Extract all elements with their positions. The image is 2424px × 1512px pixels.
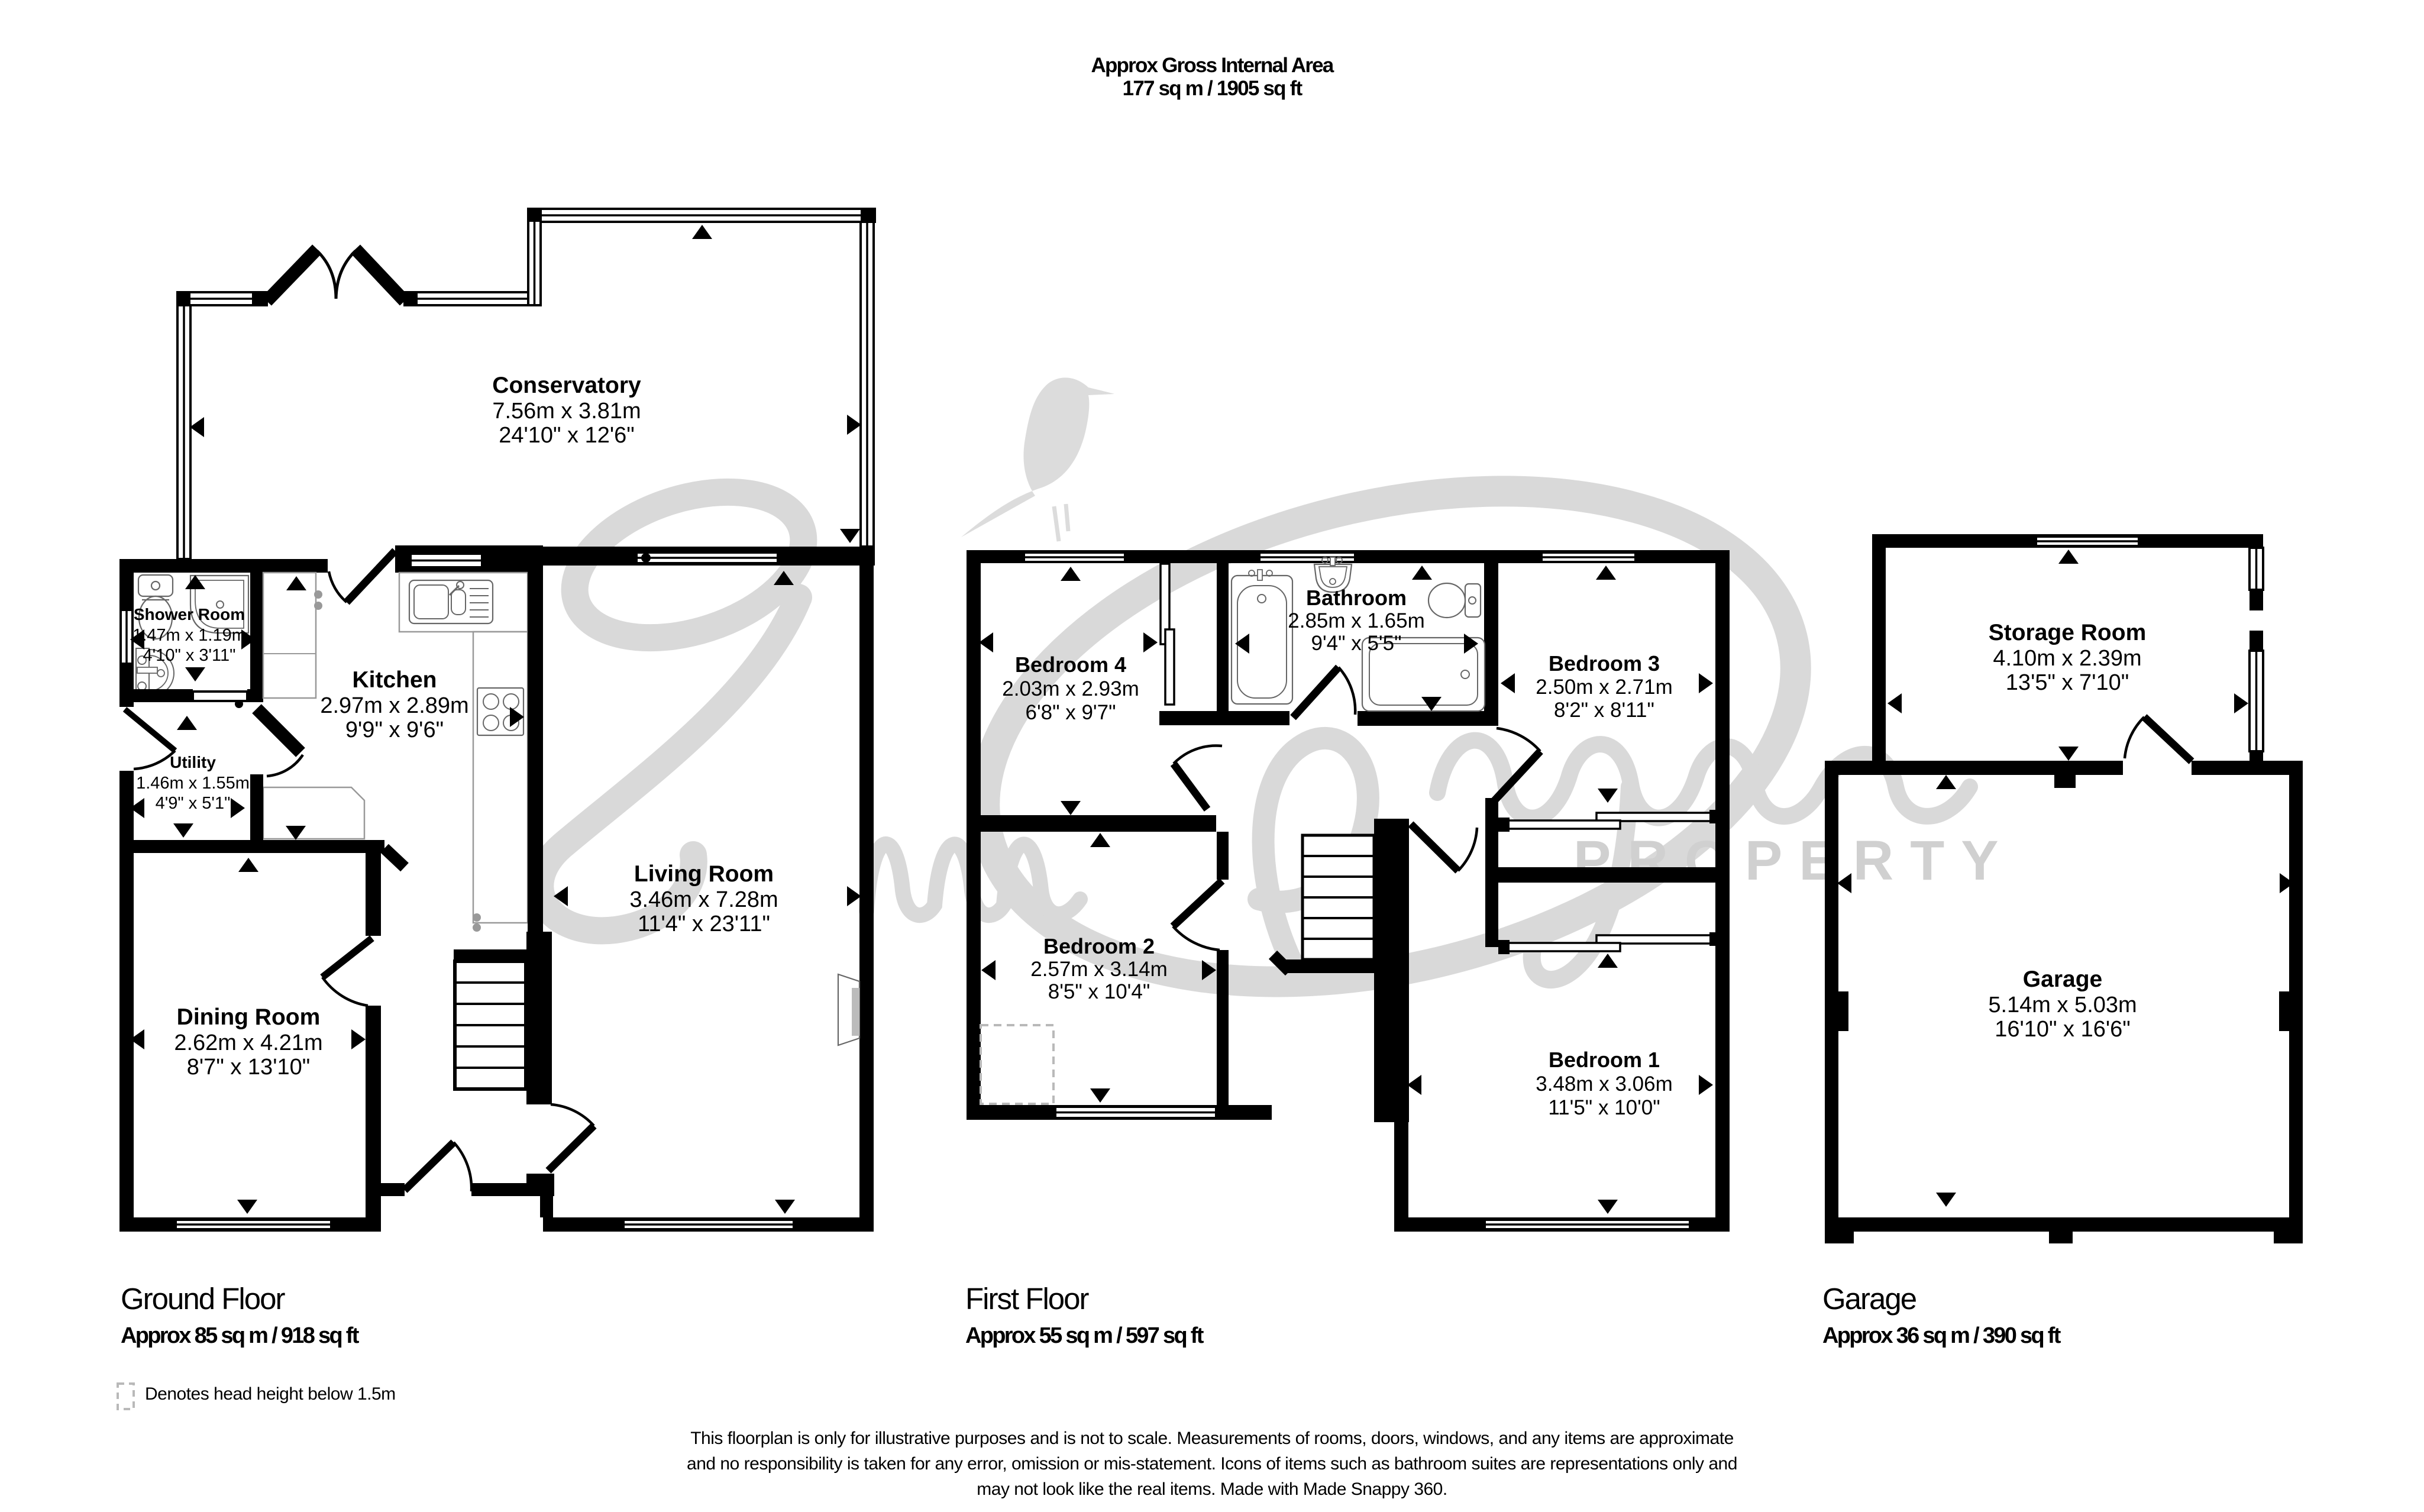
svg-text:Denotes head height below 1.5m: Denotes head height below 1.5m <box>145 1384 396 1404</box>
svg-text:Garage: Garage <box>1822 1282 1916 1316</box>
svg-text:13'5" x 7'10": 13'5" x 7'10" <box>2006 670 2129 695</box>
svg-text:Approx 36 sq m / 390 sq ft: Approx 36 sq m / 390 sq ft <box>1822 1323 2061 1348</box>
svg-text:Living Room: Living Room <box>634 861 774 887</box>
svg-text:7.56m x 3.81m: 7.56m x 3.81m <box>492 399 641 424</box>
svg-text:Bedroom 4: Bedroom 4 <box>1015 652 1126 677</box>
svg-text:9'4" x 5'5": 9'4" x 5'5" <box>1311 632 1401 655</box>
svg-text:First Floor: First Floor <box>965 1282 1090 1316</box>
svg-text:16'10" x 16'6": 16'10" x 16'6" <box>1995 1017 2131 1042</box>
svg-text:Kitchen: Kitchen <box>352 667 437 693</box>
svg-text:1.46m x 1.55m: 1.46m x 1.55m <box>136 774 250 793</box>
svg-text:Conservatory: Conservatory <box>492 373 641 398</box>
svg-text:4.10m x 2.39m: 4.10m x 2.39m <box>1993 646 2141 671</box>
svg-text:2.85m x 1.65m: 2.85m x 1.65m <box>1288 609 1425 632</box>
svg-text:24'10" x 12'6": 24'10" x 12'6" <box>499 423 635 448</box>
svg-text:may not look like the real ite: may not look like the real items. Made w… <box>977 1479 1447 1499</box>
svg-text:1.47m x 1.19m: 1.47m x 1.19m <box>132 626 246 645</box>
svg-text:5.14m x 5.03m: 5.14m x 5.03m <box>1988 993 2137 1017</box>
svg-text:2.03m x 2.93m: 2.03m x 2.93m <box>1002 677 1139 700</box>
svg-text:6'8" x 9'7": 6'8" x 9'7" <box>1025 701 1116 724</box>
svg-text:4'9" x 5'1": 4'9" x 5'1" <box>156 794 231 813</box>
svg-text:Approx Gross Internal Area: Approx Gross Internal Area <box>1091 54 1334 77</box>
svg-text:177 sq m / 1905 sq ft: 177 sq m / 1905 sq ft <box>1123 77 1303 100</box>
svg-text:Bedroom 2: Bedroom 2 <box>1043 934 1155 958</box>
svg-text:Shower Room: Shower Room <box>134 605 245 623</box>
svg-text:2.50m x 2.71m: 2.50m x 2.71m <box>1536 676 1673 699</box>
svg-text:3.46m x 7.28m: 3.46m x 7.28m <box>629 887 778 912</box>
svg-text:9'9" x 9'6": 9'9" x 9'6" <box>345 718 444 742</box>
svg-text:and no responsibility is taken: and no responsibility is taken for any e… <box>687 1454 1737 1474</box>
svg-text:4'10" x 3'11": 4'10" x 3'11" <box>143 646 236 665</box>
svg-text:Storage Room: Storage Room <box>1989 620 2147 645</box>
svg-text:This floorplan is only for ill: This floorplan is only for illustrative … <box>690 1429 1734 1448</box>
svg-text:Approx 55 sq m / 597 sq ft: Approx 55 sq m / 597 sq ft <box>965 1323 1204 1348</box>
svg-text:11'5" x 10'0": 11'5" x 10'0" <box>1548 1096 1660 1119</box>
svg-text:Ground Floor: Ground Floor <box>121 1282 285 1316</box>
svg-text:2.57m x 3.14m: 2.57m x 3.14m <box>1030 958 1168 981</box>
svg-text:2.97m x 2.89m: 2.97m x 2.89m <box>320 693 468 718</box>
svg-text:Bathroom: Bathroom <box>1306 586 1407 610</box>
svg-text:8'7" x 13'10": 8'7" x 13'10" <box>187 1055 310 1080</box>
svg-text:Garage: Garage <box>2023 967 2102 992</box>
svg-text:Utility: Utility <box>170 753 216 771</box>
svg-text:Bedroom 3: Bedroom 3 <box>1549 651 1660 676</box>
svg-text:Dining Room: Dining Room <box>177 1004 321 1030</box>
svg-text:8'2" x 8'11": 8'2" x 8'11" <box>1554 699 1654 722</box>
svg-text:PROPERTY: PROPERTY <box>1573 829 2015 892</box>
svg-text:8'5" x 10'4": 8'5" x 10'4" <box>1048 980 1150 1003</box>
svg-text:2.62m x 4.21m: 2.62m x 4.21m <box>174 1030 322 1055</box>
svg-text:11'4" x 23'11": 11'4" x 23'11" <box>638 912 770 936</box>
svg-text:Bedroom 1: Bedroom 1 <box>1549 1048 1660 1072</box>
svg-text:Approx 85 sq m / 918 sq ft: Approx 85 sq m / 918 sq ft <box>121 1323 360 1348</box>
svg-text:3.48m x 3.06m: 3.48m x 3.06m <box>1536 1072 1673 1096</box>
